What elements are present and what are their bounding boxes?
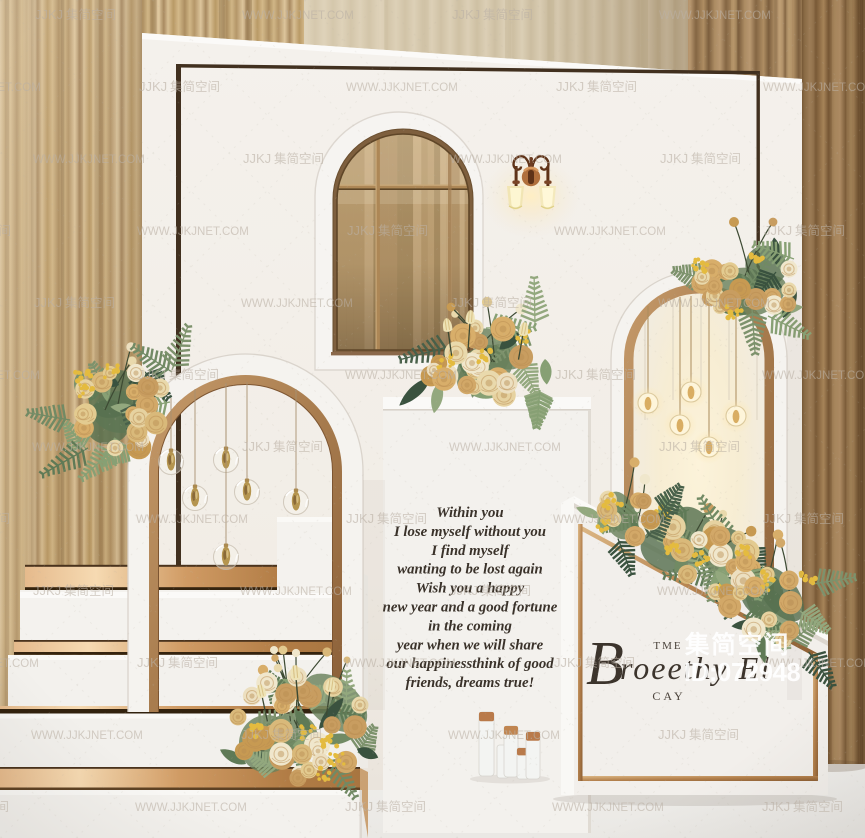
svg-text:集简空间: 集简空间 xyxy=(170,79,220,94)
svg-text:集简空间: 集简空间 xyxy=(794,511,844,526)
svg-text:JJKJ: JJKJ xyxy=(554,655,582,670)
svg-text:WWW.JJKJNET.COM: WWW.JJKJNET.COM xyxy=(136,514,248,526)
svg-text:WWW.JJKJNET.COM: WWW.JJKJNET.COM xyxy=(449,442,561,454)
svg-text:WWW.JJKJNET.COM: WWW.JJKJNET.COM xyxy=(658,298,770,310)
svg-text:集简空间: 集简空间 xyxy=(481,583,531,598)
svg-text:WWW.JJKJNET.COM: WWW.JJKJNET.COM xyxy=(137,226,249,238)
svg-text:集简空间: 集简空间 xyxy=(587,79,637,94)
svg-text:WWW.JJKJNET.COM: WWW.JJKJNET.COM xyxy=(31,730,143,742)
svg-text:JJKJ: JJKJ xyxy=(139,79,167,94)
svg-text:WWW.JJKJNET.COM: WWW.JJKJNET.COM xyxy=(448,730,560,742)
svg-text:WWW.JJKJNET.COM: WWW.JJKJNET.COM xyxy=(0,658,39,670)
svg-text:集简空间: 集简空间 xyxy=(65,295,115,310)
svg-text:JJKJ: JJKJ xyxy=(658,727,686,742)
svg-text:JJKJ: JJKJ xyxy=(555,367,583,382)
svg-text:JJKJ: JJKJ xyxy=(450,583,478,598)
svg-text:WWW.JJKJNET.COM: WWW.JJKJNET.COM xyxy=(0,370,40,382)
svg-text:WWW.JJKJNET.COM: WWW.JJKJNET.COM xyxy=(135,802,247,814)
svg-text:集简空间: 集简空间 xyxy=(0,511,10,526)
svg-text:WWW.JJKJNET.COM: WWW.JJKJNET.COM xyxy=(345,370,457,382)
svg-text:JJKJ: JJKJ xyxy=(764,223,792,238)
svg-text:JJKJ: JJKJ xyxy=(346,511,374,526)
svg-text:JJKJ: JJKJ xyxy=(660,151,688,166)
svg-text:ID:072948: ID:072948 xyxy=(684,659,801,687)
svg-text:JJKJ: JJKJ xyxy=(345,799,373,814)
svg-text:JJKJ: JJKJ xyxy=(33,583,61,598)
svg-text:JJKJ: JJKJ xyxy=(138,367,166,382)
svg-text:WWW.JJKJNET.COM: WWW.JJKJNET.COM xyxy=(553,514,665,526)
svg-text:JJKJ: JJKJ xyxy=(556,79,584,94)
svg-text:WWW.JJKJNET.COM: WWW.JJKJNET.COM xyxy=(240,586,352,598)
svg-text:JJKJ: JJKJ xyxy=(452,7,480,22)
svg-text:集简空间: 集简空间 xyxy=(585,655,635,670)
svg-text:WWW.JJKJNET.COM: WWW.JJKJNET.COM xyxy=(552,802,664,814)
svg-text:JJKJ: JJKJ xyxy=(34,295,62,310)
svg-text:JJKJ: JJKJ xyxy=(659,439,687,454)
svg-text:集简空间: 集简空间 xyxy=(793,799,843,814)
svg-text:JJKJ: JJKJ xyxy=(763,511,791,526)
svg-text:集简空间: 集简空间 xyxy=(691,151,741,166)
svg-text:JJKJ: JJKJ xyxy=(241,727,269,742)
svg-text:WWW.JJKJNET.COM: WWW.JJKJNET.COM xyxy=(762,370,865,382)
svg-text:集简空间: 集简空间 xyxy=(0,223,11,238)
svg-text:WWW.JJKJNET.COM: WWW.JJKJNET.COM xyxy=(763,82,865,94)
svg-text:WWW.JJKJNET.COM: WWW.JJKJNET.COM xyxy=(242,10,354,22)
svg-text:集简空间: 集简空间 xyxy=(66,7,116,22)
svg-text:集简空间: 集简空间 xyxy=(0,799,9,814)
svg-text:WWW.JJKJNET.COM: WWW.JJKJNET.COM xyxy=(657,586,769,598)
svg-text:集简空间: 集简空间 xyxy=(483,7,533,22)
svg-text:集简空间: 集简空间 xyxy=(64,583,114,598)
svg-text:WWW.JJKJNET.COM: WWW.JJKJNET.COM xyxy=(450,154,562,166)
svg-text:集简空间: 集简空间 xyxy=(377,511,427,526)
svg-text:WWW.JJKJNET.COM: WWW.JJKJNET.COM xyxy=(32,442,144,454)
svg-text:JJKJ: JJKJ xyxy=(451,295,479,310)
svg-text:WWW.JJKJNET.COM: WWW.JJKJNET.COM xyxy=(659,10,771,22)
svg-text:集简空间: 集简空间 xyxy=(690,439,740,454)
svg-text:JJKJ: JJKJ xyxy=(137,655,165,670)
svg-text:WWW.JJKJNET.COM: WWW.JJKJNET.COM xyxy=(241,298,353,310)
svg-text:WWW.JJKJNET.COM: WWW.JJKJNET.COM xyxy=(0,82,41,94)
svg-text:WWW.JJKJNET.COM: WWW.JJKJNET.COM xyxy=(554,226,666,238)
svg-text:集简空间: 集简空间 xyxy=(795,223,845,238)
svg-text:集简空间: 集简空间 xyxy=(378,223,428,238)
svg-text:集简空间: 集简空间 xyxy=(689,727,739,742)
svg-text:集简空间: 集简空间 xyxy=(273,439,323,454)
svg-text:WWW.JJKJNET.COM: WWW.JJKJNET.COM xyxy=(344,658,456,670)
svg-text:集简空间: 集简空间 xyxy=(586,367,636,382)
svg-text:集简空间: 集简空间 xyxy=(272,727,322,742)
svg-text:WWW.JJKJNET.COM: WWW.JJKJNET.COM xyxy=(33,154,145,166)
svg-text:集简空间: 集简空间 xyxy=(169,367,219,382)
svg-text:JJKJ: JJKJ xyxy=(35,7,63,22)
svg-text:集简空间: 集简空间 xyxy=(684,630,790,659)
svg-text:集简空间: 集简空间 xyxy=(376,799,426,814)
svg-text:集简空间: 集简空间 xyxy=(168,655,218,670)
svg-text:JJKJ: JJKJ xyxy=(762,799,790,814)
svg-text:JJKJ: JJKJ xyxy=(347,223,375,238)
svg-text:JJKJ: JJKJ xyxy=(242,439,270,454)
svg-text:JJKJ: JJKJ xyxy=(243,151,271,166)
svg-text:WWW.JJKJNET.COM: WWW.JJKJNET.COM xyxy=(346,82,458,94)
svg-text:集简空间: 集简空间 xyxy=(482,295,532,310)
svg-text:集简空间: 集简空间 xyxy=(274,151,324,166)
